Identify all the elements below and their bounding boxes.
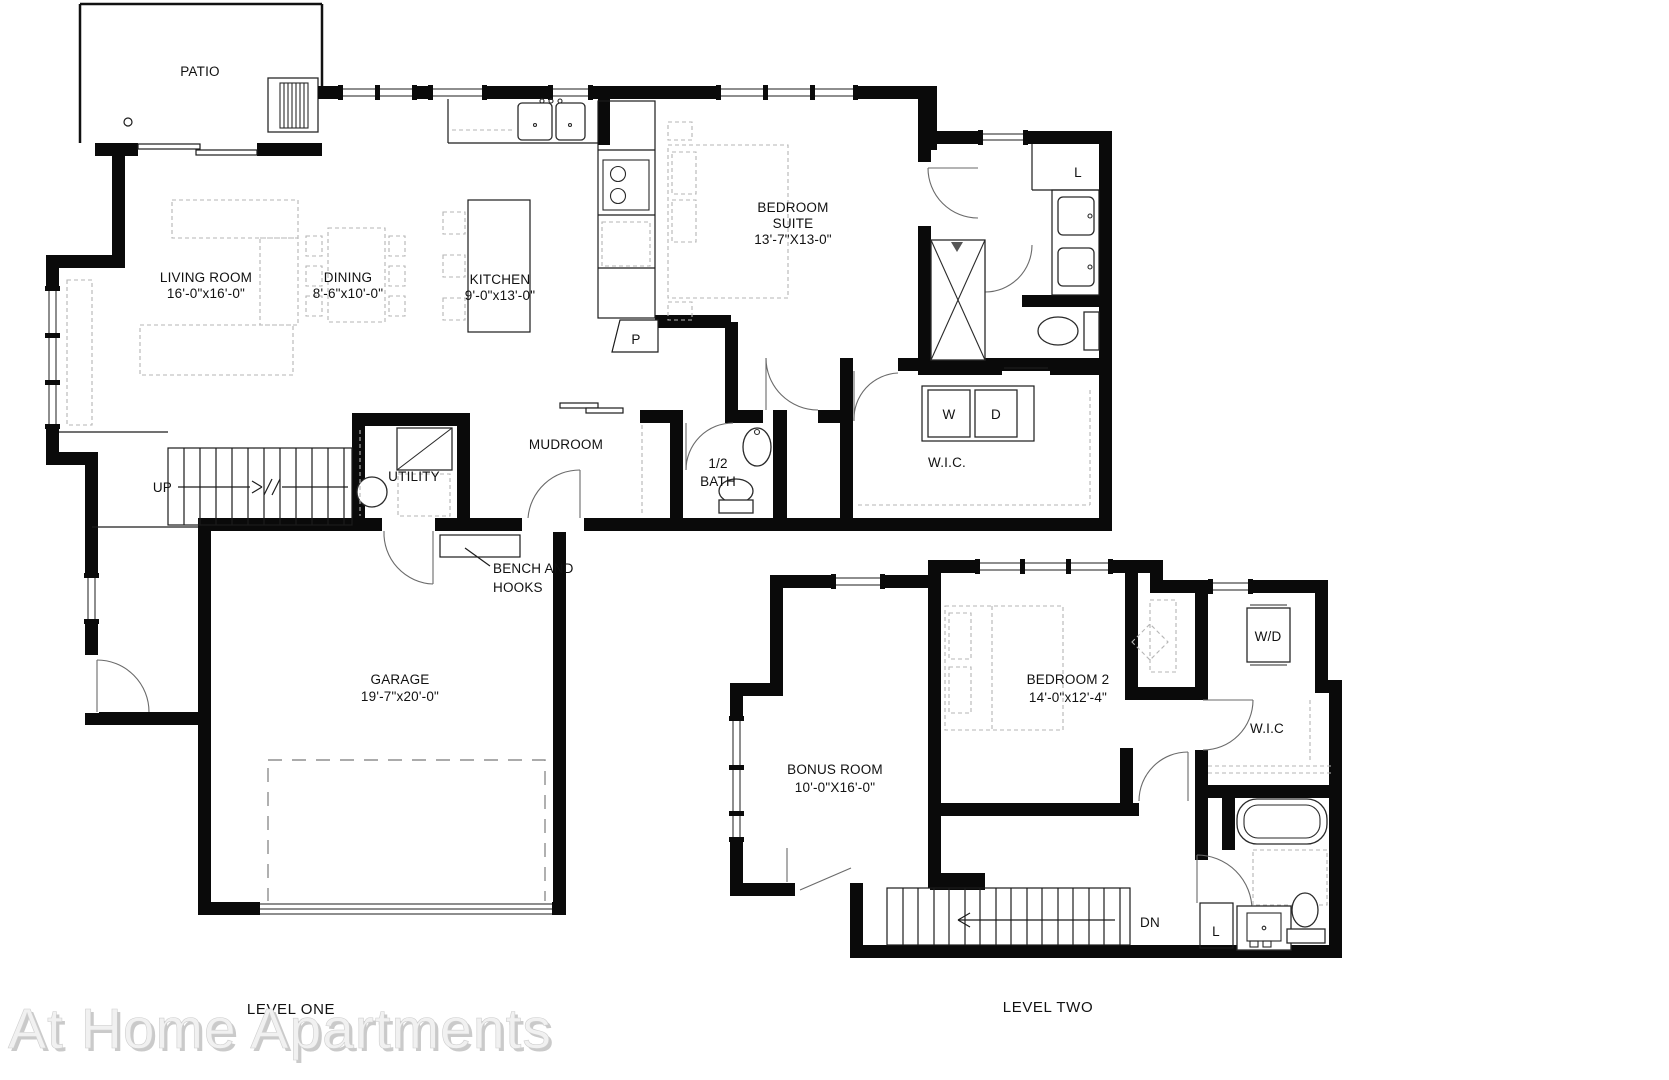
window bbox=[716, 85, 858, 100]
kitchen-dims: 9'-0"x13'-0" bbox=[465, 288, 535, 303]
bonus-room-dims: 10'-0"X16'-0" bbox=[795, 780, 875, 795]
watermark: At Home Apartments At Home Apartments bbox=[8, 997, 555, 1064]
half-bath-label: 1/2 bbox=[708, 456, 727, 471]
bedroom2-dims: 14'-0"x12'-4" bbox=[1029, 690, 1107, 705]
bonus-room-label: BONUS ROOM bbox=[787, 762, 883, 777]
window bbox=[975, 559, 1113, 574]
dn-label: DN bbox=[1140, 915, 1160, 930]
bedroom-suite-label2: SUITE bbox=[773, 216, 814, 231]
watermark-text: At Home Apartments bbox=[8, 997, 552, 1061]
wic2-label: W.I.C bbox=[1250, 721, 1284, 736]
floorplan-page: PATIO LIVING ROOM 16'-0"x16'-0" DINING 8… bbox=[0, 0, 1669, 1080]
kitchen-sink bbox=[518, 99, 585, 140]
window bbox=[729, 716, 744, 842]
window bbox=[831, 574, 885, 589]
garage-door bbox=[260, 901, 552, 916]
living-room-dims: 16'-0"x16'-0" bbox=[167, 286, 245, 301]
dining-label: DINING bbox=[324, 270, 372, 285]
level-two-title: LEVEL TWO bbox=[1003, 999, 1093, 1016]
grill-icon bbox=[268, 78, 318, 132]
bath2-vanity bbox=[1237, 906, 1291, 950]
bedroom2-label: BEDROOM 2 bbox=[1027, 672, 1110, 687]
toilet bbox=[1038, 317, 1078, 345]
pantry-label: P bbox=[631, 332, 640, 347]
mudroom-label: MUDROOM bbox=[529, 437, 603, 452]
washer-label: W bbox=[943, 407, 956, 422]
linen2-label: L bbox=[1212, 924, 1220, 939]
window bbox=[428, 85, 487, 100]
bedroom-suite-label: BEDROOM bbox=[757, 200, 828, 215]
floor-plan-canvas: PATIO LIVING ROOM 16'-0"x16'-0" DINING 8… bbox=[0, 0, 1669, 1080]
utility-label: UTILITY bbox=[388, 469, 440, 484]
garage-dims: 19'-7"x20'-0" bbox=[361, 689, 439, 704]
window bbox=[45, 286, 60, 429]
window bbox=[978, 130, 1028, 145]
half-bath-label2: BATH bbox=[700, 474, 736, 489]
bedroom-suite-dims: 13'-7"X13-0" bbox=[754, 232, 832, 247]
wd-label: W/D bbox=[1255, 629, 1282, 644]
dining-dims: 8'-6"x10'-0" bbox=[313, 286, 383, 301]
dryer-label: D bbox=[991, 407, 1001, 422]
kitchen-label: KITCHEN bbox=[470, 272, 531, 287]
garage-label: GARAGE bbox=[371, 672, 430, 687]
living-room-label: LIVING ROOM bbox=[160, 270, 252, 285]
window bbox=[1208, 579, 1253, 594]
bench-label2: HOOKS bbox=[493, 580, 543, 595]
bathtub bbox=[1237, 799, 1327, 844]
island bbox=[468, 200, 530, 332]
linen-label: L bbox=[1074, 165, 1082, 180]
bench-label: BENCH AND bbox=[493, 561, 574, 576]
window bbox=[84, 573, 99, 624]
background bbox=[0, 0, 1669, 1080]
window bbox=[338, 85, 417, 100]
up-label: UP bbox=[153, 480, 172, 495]
patio-label: PATIO bbox=[180, 64, 220, 79]
wic-label: W.I.C. bbox=[928, 455, 966, 470]
window bbox=[548, 85, 593, 100]
